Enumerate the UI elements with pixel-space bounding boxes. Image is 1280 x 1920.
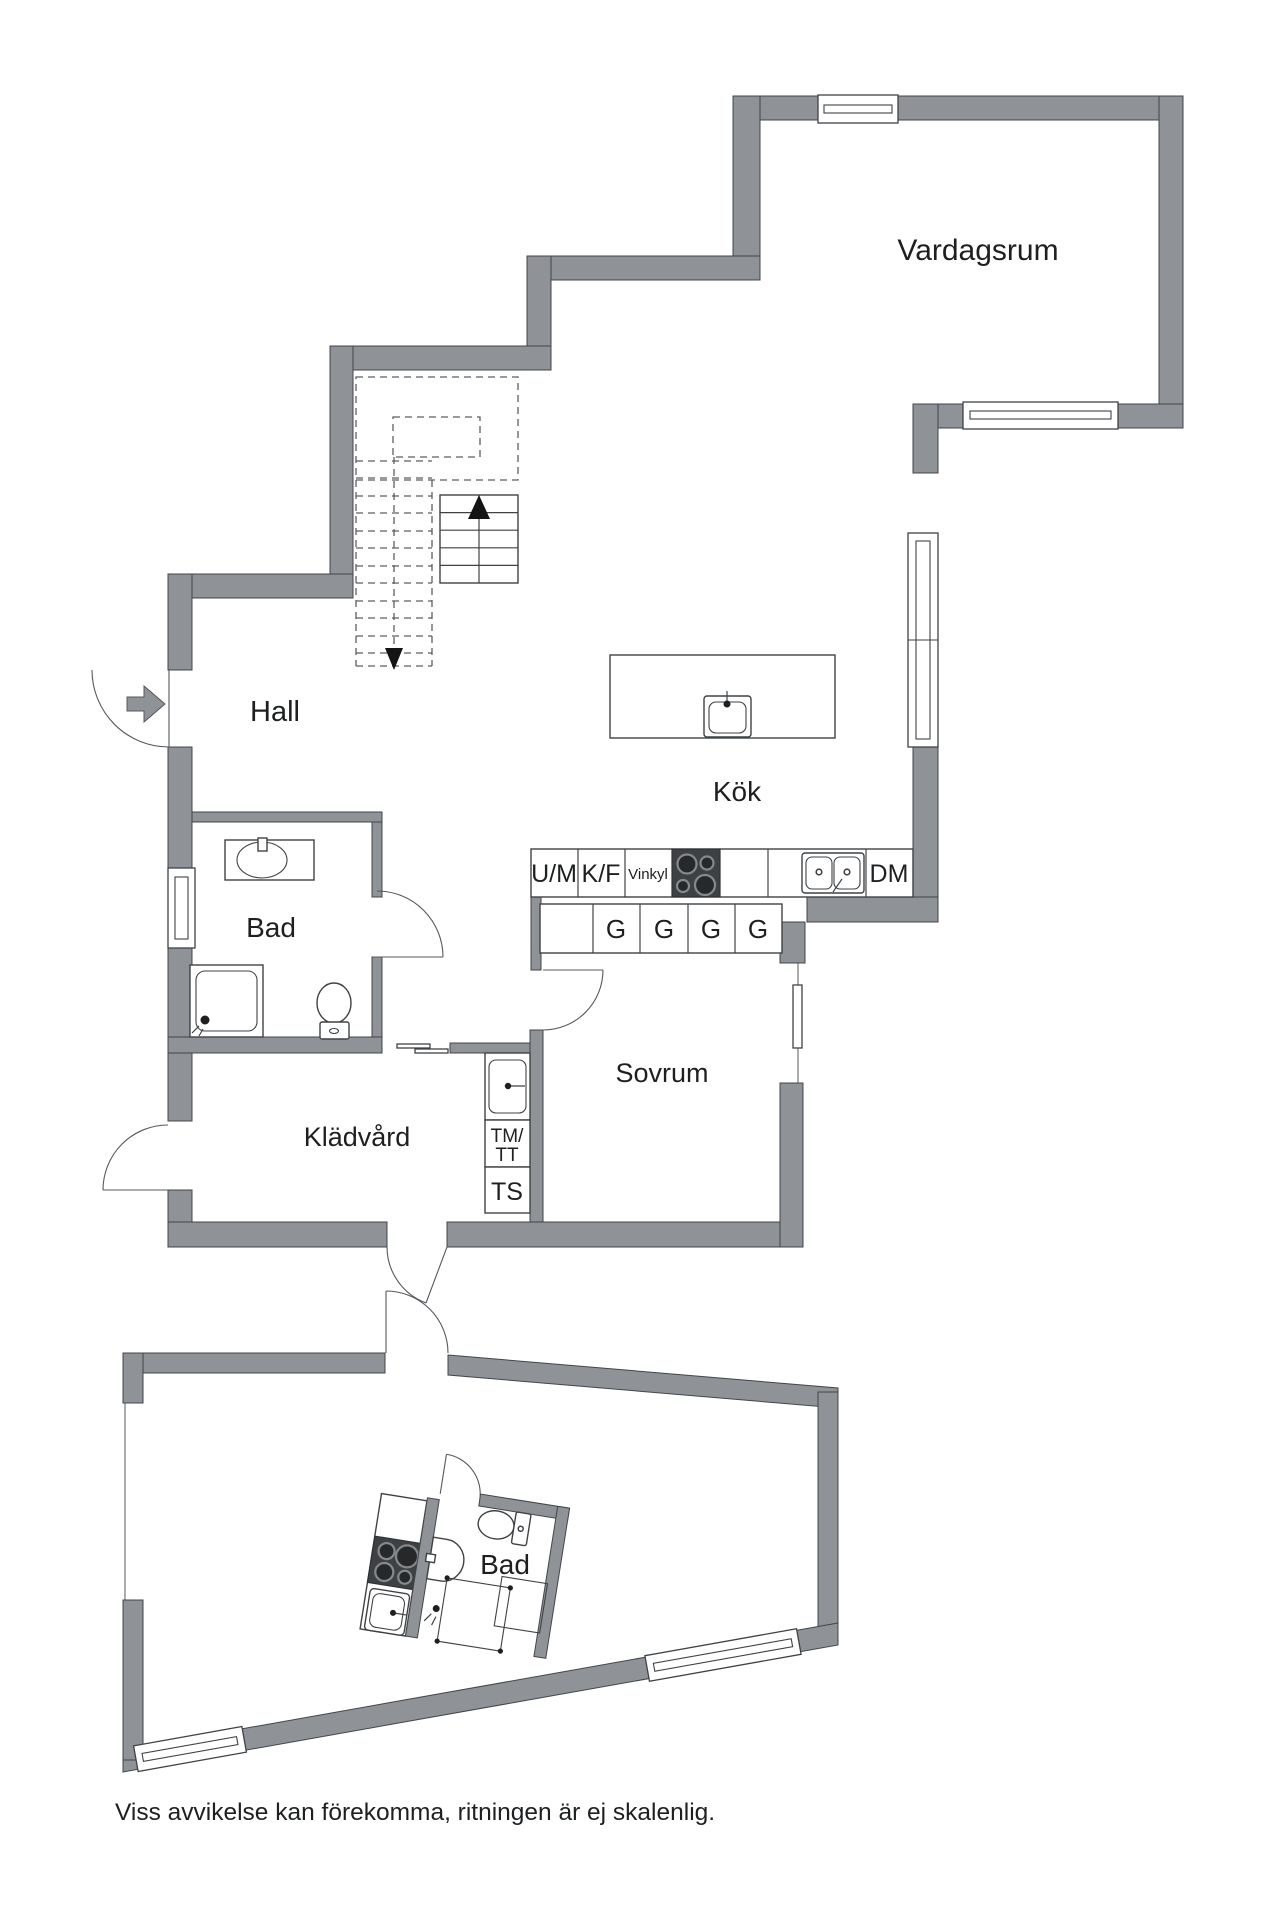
label-kf: K/F [582,860,621,888]
room-label-living-room: Vardagsrum [897,234,1058,267]
label-cabinet-4: G [748,914,768,944]
label-ts: TS [491,1178,523,1206]
double-sink-icon [802,853,864,893]
floorplan-page: U/M K/F Vinkyl DM G G G G [0,0,1280,1920]
vanity-sink-icon [225,838,314,880]
upper-floor: U/M K/F Vinkyl DM G G G G [92,95,1183,1303]
kitchen-island [610,655,835,738]
bathroom-door [373,891,443,957]
laundry-units: TM/ TT TS [485,1053,530,1213]
kitchenette-stove-icon [367,1536,420,1590]
window-kitchen-east [908,533,938,747]
label-vinkyl: Vinkyl [628,866,668,883]
bedroom-door [543,970,603,1030]
label-tm: TM/ [491,1126,524,1147]
label-dm: DM [870,860,909,888]
shower-icon [190,965,263,1037]
window-top-living-room [818,95,898,123]
staircase [356,377,518,670]
window-bathroom-west [168,868,195,948]
stairs-down-arrow-icon [385,648,403,670]
room-label-bedroom: Sovrum [615,1058,708,1088]
lower-entrance-door [386,1291,448,1353]
window-bedroom-east [793,963,802,1083]
toilet-icon [317,983,351,1039]
room-label-hall: Hall [250,696,300,728]
laundry-sink-icon [485,1053,530,1120]
room-label-laundry: Klädvård [304,1122,411,1152]
stove-icon [672,849,720,897]
entrance-arrow-icon [127,686,165,722]
label-um: U/M [531,860,577,888]
kitchen-counter: U/M K/F Vinkyl DM [531,849,913,897]
label-cabinet-2: G [654,914,674,944]
kitchenette-sink-icon [364,1588,410,1636]
room-label-kitchen: Kök [713,776,762,807]
lower-building: Bad [123,1291,838,1772]
label-cabinet-1: G [606,914,626,944]
room-label-bathroom-lower: Bad [480,1549,530,1580]
disclaimer-text: Viss avvikelse kan förekomma, ritningen … [115,1799,715,1826]
label-cabinet-3: G [701,914,721,944]
sliding-door-hall-laundry [397,1044,448,1053]
window-living-room-south [963,402,1118,429]
label-tt: TT [495,1145,519,1166]
entrance-door [92,670,169,747]
south-exterior-door [387,1247,447,1303]
room-label-bathroom-upper: Bad [246,912,296,943]
lower-bathroom-door [440,1454,486,1500]
window-lower-south-east [645,1629,801,1682]
island-sink [704,691,751,737]
lower-bathroom [360,1445,575,1661]
window-lower-south-west [134,1727,247,1772]
floorplan-drawing: U/M K/F Vinkyl DM G G G G [0,0,1280,1920]
kitchen-cabinet-row: G G G G [540,904,782,953]
laundry-exterior-door [103,1125,168,1190]
